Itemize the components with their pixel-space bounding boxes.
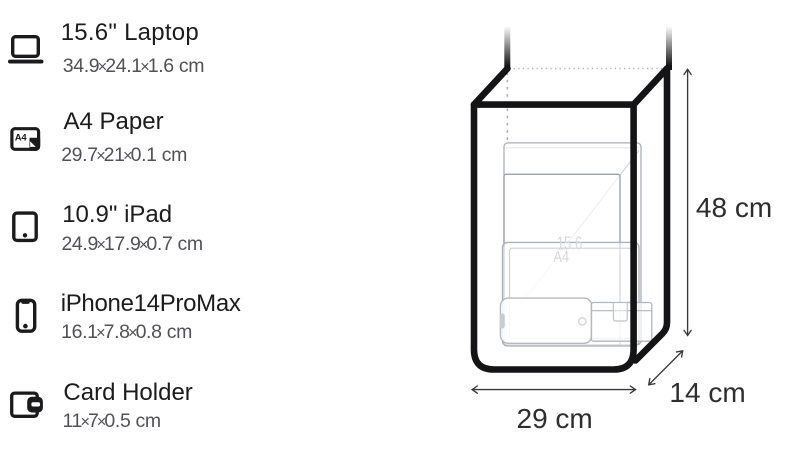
svg-text:A4: A4 [554,249,570,266]
svg-text:A4: A4 [15,133,28,144]
